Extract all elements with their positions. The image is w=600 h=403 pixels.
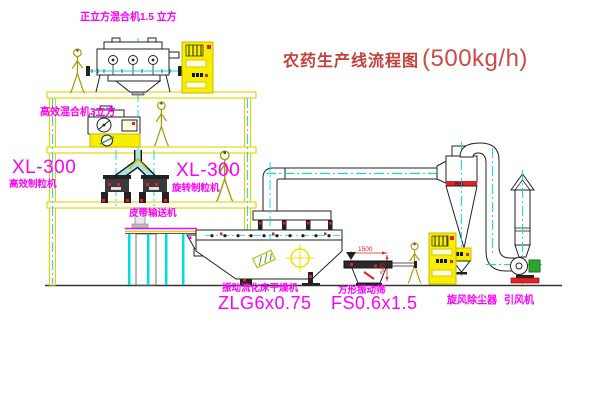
title-capacity: (500kg/h) <box>422 45 528 73</box>
granulator-right-drawing <box>139 175 169 203</box>
label-second-mixer: 高效混合机3立方 <box>40 108 116 119</box>
fan-drawing <box>511 258 541 284</box>
worker-second-floor <box>154 102 168 146</box>
label-granulator-left-model: XL-300 <box>12 158 76 177</box>
control-cabinet-top <box>182 42 213 93</box>
granulator-left-drawing <box>101 175 131 203</box>
label-granulator-right-name: 旋转制粒机 <box>172 184 220 194</box>
label-granulator-right-model: XL-300 <box>176 161 240 180</box>
flow-diagram-canvas: 1500 545 800 农药生产线流程图 (500kg/h) 正立方混合机1.… <box>0 0 600 403</box>
diagram-title: 农药生产线流程图 (500kg/h) <box>283 45 528 73</box>
label-dryer-model: ZLG6x0.75 <box>218 294 312 312</box>
control-cabinet-right <box>429 233 456 284</box>
belt-conveyor-drawing <box>125 208 197 285</box>
label-granulator-left-name: 高效制粒机 <box>9 180 57 190</box>
label-fan: 引风机 <box>504 296 534 307</box>
cyclone-band-text: 800 <box>455 182 464 188</box>
title-name: 农药生产线流程图 <box>283 47 419 71</box>
label-cyclone: 旋风除尘器 <box>447 296 497 307</box>
exhaust-duct <box>266 162 444 240</box>
dim-545: 545 <box>380 263 387 274</box>
worker-top-floor <box>70 49 84 93</box>
dim-1500: 1500 <box>358 246 373 253</box>
label-screen-model: FS0.6x1.5 <box>331 294 418 312</box>
cube-mixer-drawing <box>86 38 182 95</box>
label-belt-conveyor: 皮带输送机 <box>129 209 177 219</box>
label-top-mixer: 正立方混合机1.5 立方 <box>80 13 177 24</box>
